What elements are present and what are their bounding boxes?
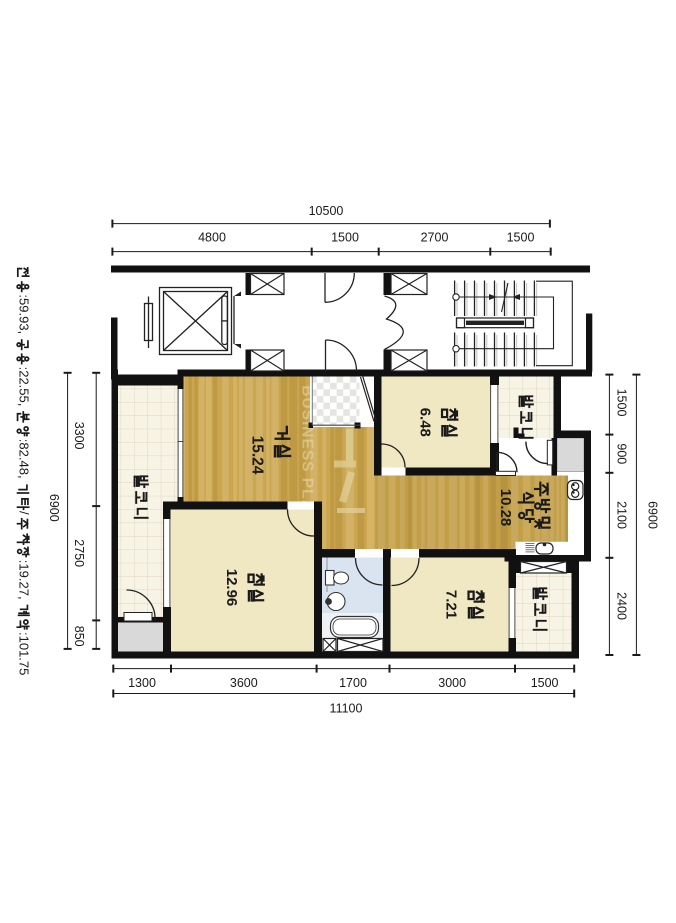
svg-text:2700: 2700 [421,231,449,245]
svg-text:850: 850 [72,626,86,647]
svg-text:900: 900 [615,443,629,464]
svg-text::22.55,: :22.55, [17,367,32,407]
svg-text:1300: 1300 [128,676,156,690]
svg-text:2400: 2400 [615,592,629,620]
svg-text:1500: 1500 [615,389,629,417]
svg-text:10.28: 10.28 [497,489,514,527]
svg-text:15.24: 15.24 [249,436,266,475]
svg-text::59.93,: :59.93, [17,294,32,334]
svg-text:3600: 3600 [230,676,258,690]
svg-text::19.27,: :19.27, [17,560,32,600]
svg-text:2750: 2750 [72,539,86,567]
svg-text:4800: 4800 [198,231,226,245]
svg-text:3300: 3300 [72,422,86,450]
svg-text:1700: 1700 [339,676,367,690]
svg-text::101.75: :101.75 [17,632,32,675]
svg-text:11100: 11100 [330,702,363,716]
svg-text:/: / [17,511,32,515]
svg-text:6900: 6900 [47,494,61,522]
svg-text:1500: 1500 [507,231,535,245]
svg-text:7.21: 7.21 [442,590,459,619]
svg-text:6.48: 6.48 [416,408,433,437]
svg-text:3000: 3000 [438,676,466,690]
svg-text:10500: 10500 [309,204,344,218]
svg-text:1500: 1500 [531,676,559,690]
svg-text:12.96: 12.96 [223,569,240,607]
svg-text:2100: 2100 [615,501,629,529]
svg-text::82.48,: :82.48, [17,439,32,479]
svg-text:6900: 6900 [646,501,660,529]
svg-text:1500: 1500 [331,231,359,245]
